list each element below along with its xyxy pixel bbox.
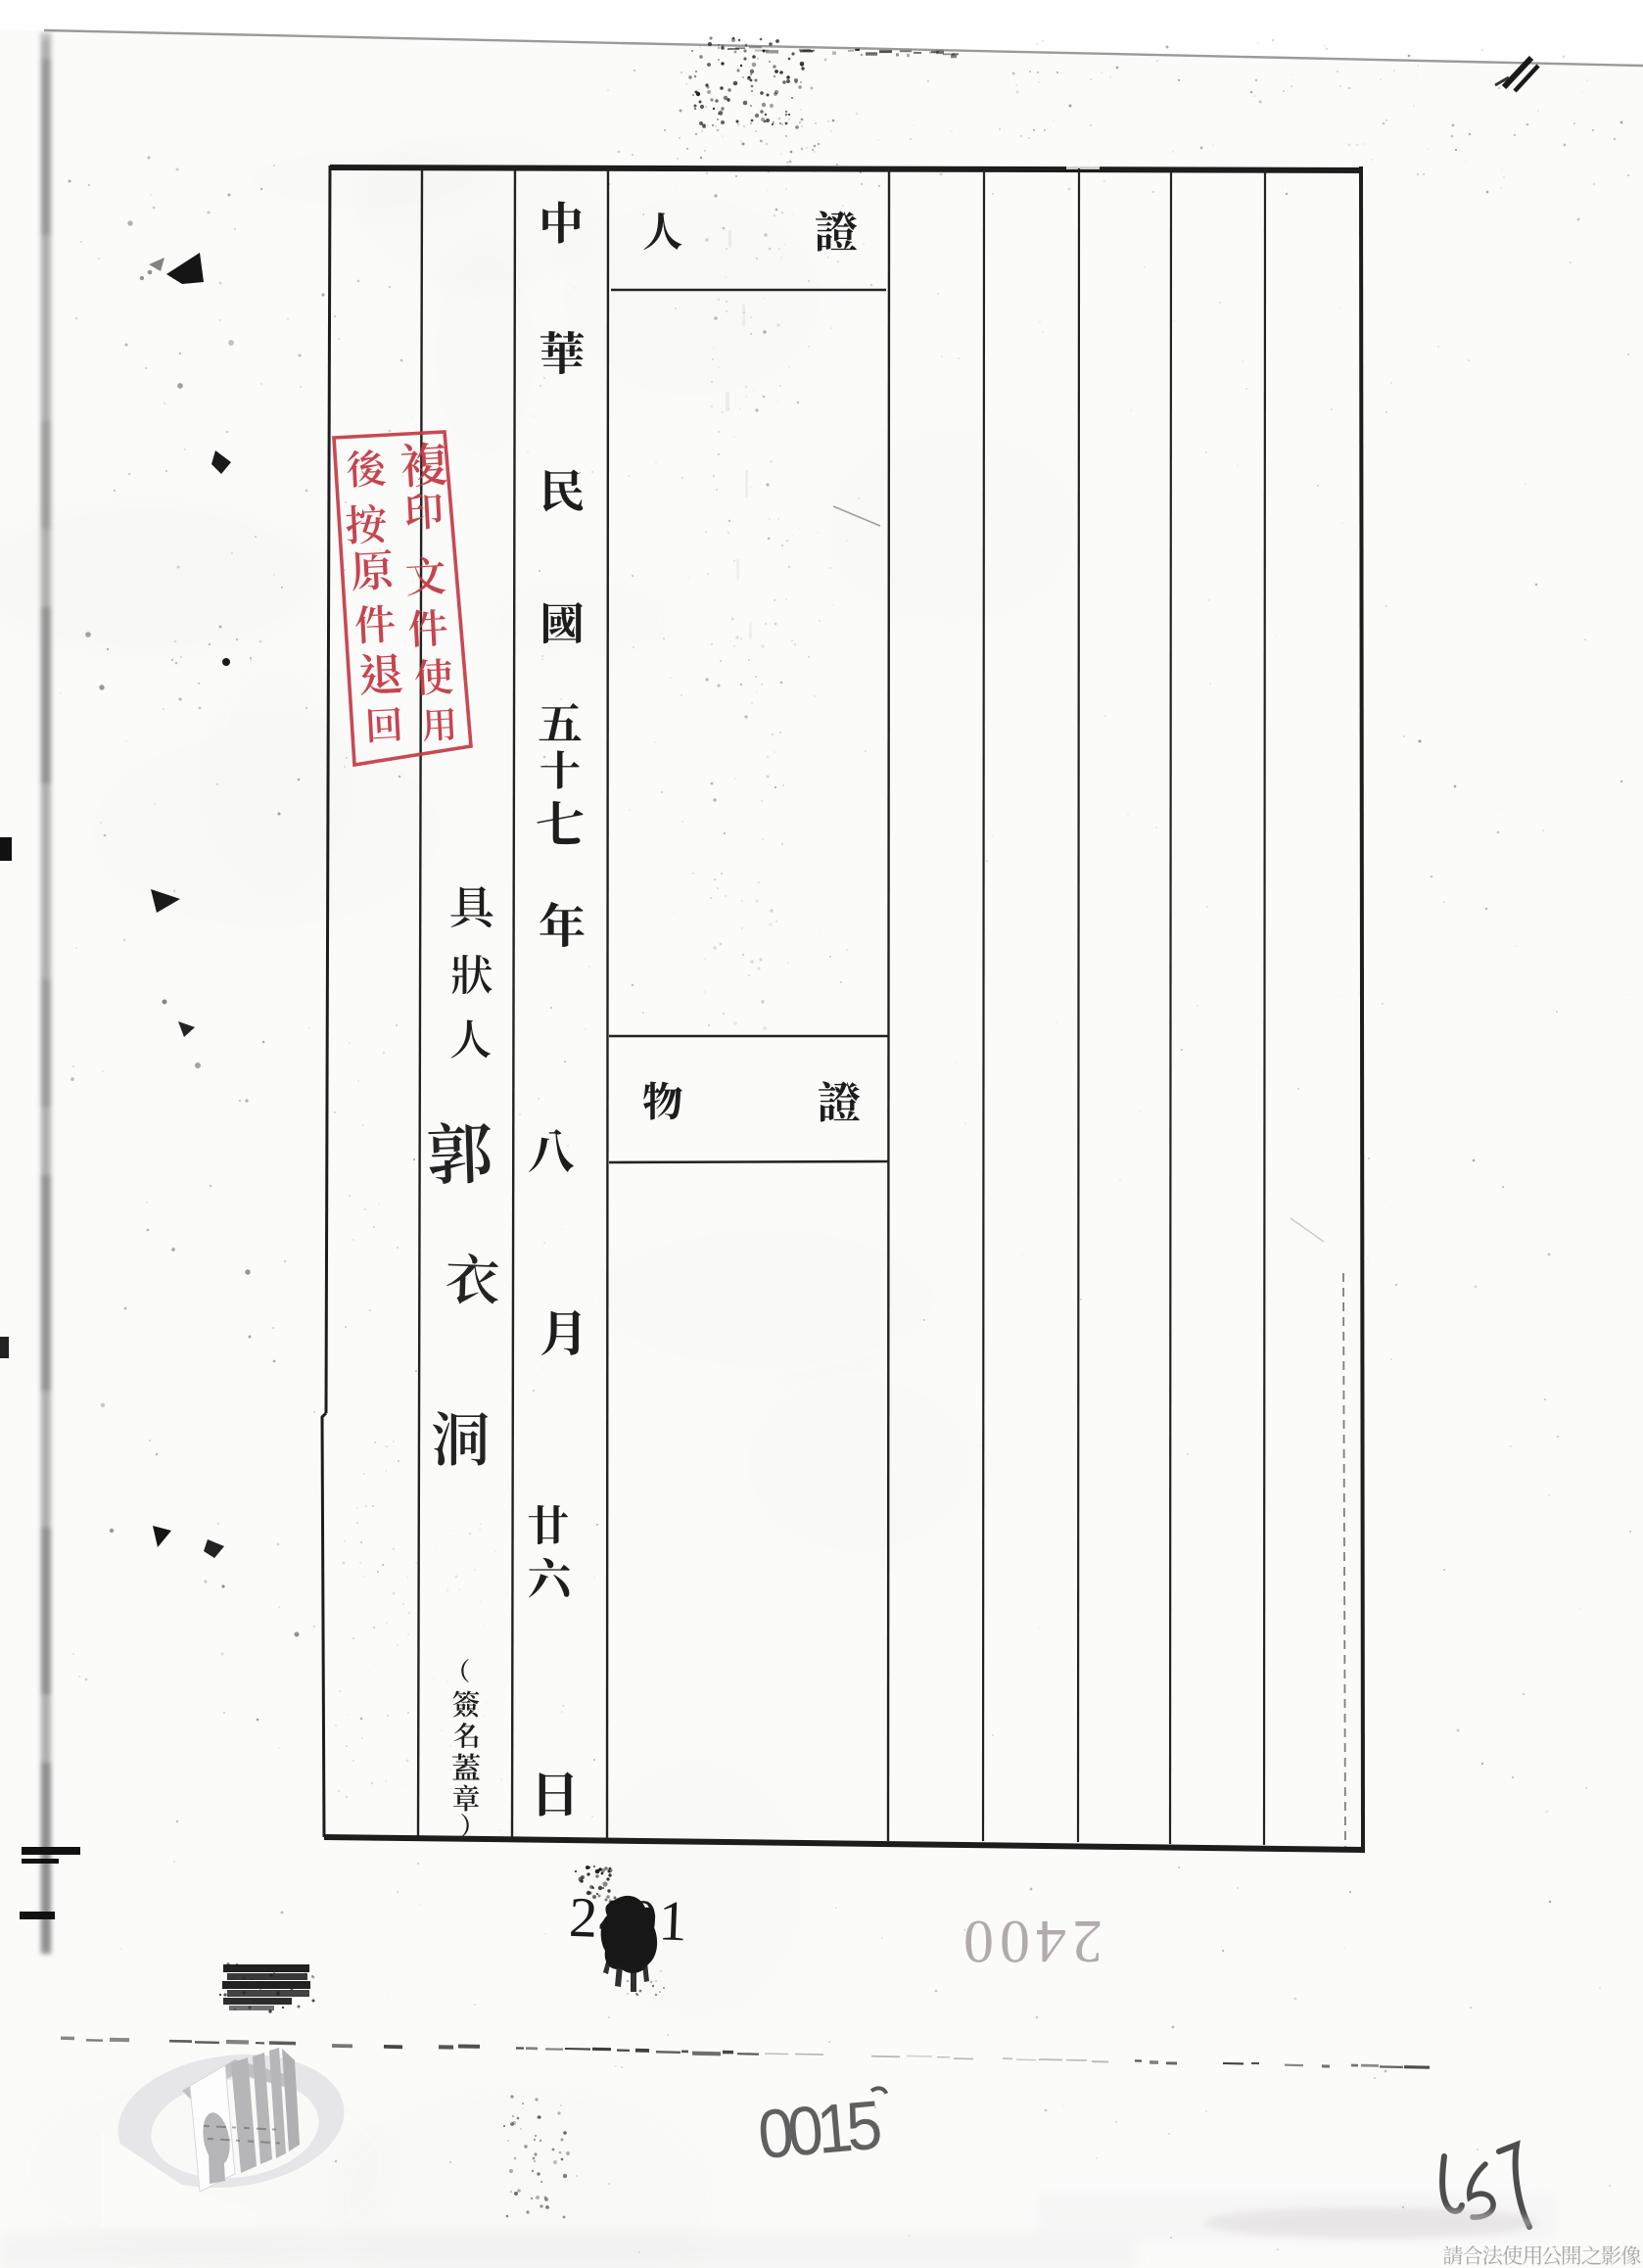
svg-text:0015: 0015 <box>755 2087 882 2173</box>
svg-text:2400: 2400 <box>958 1908 1103 1974</box>
